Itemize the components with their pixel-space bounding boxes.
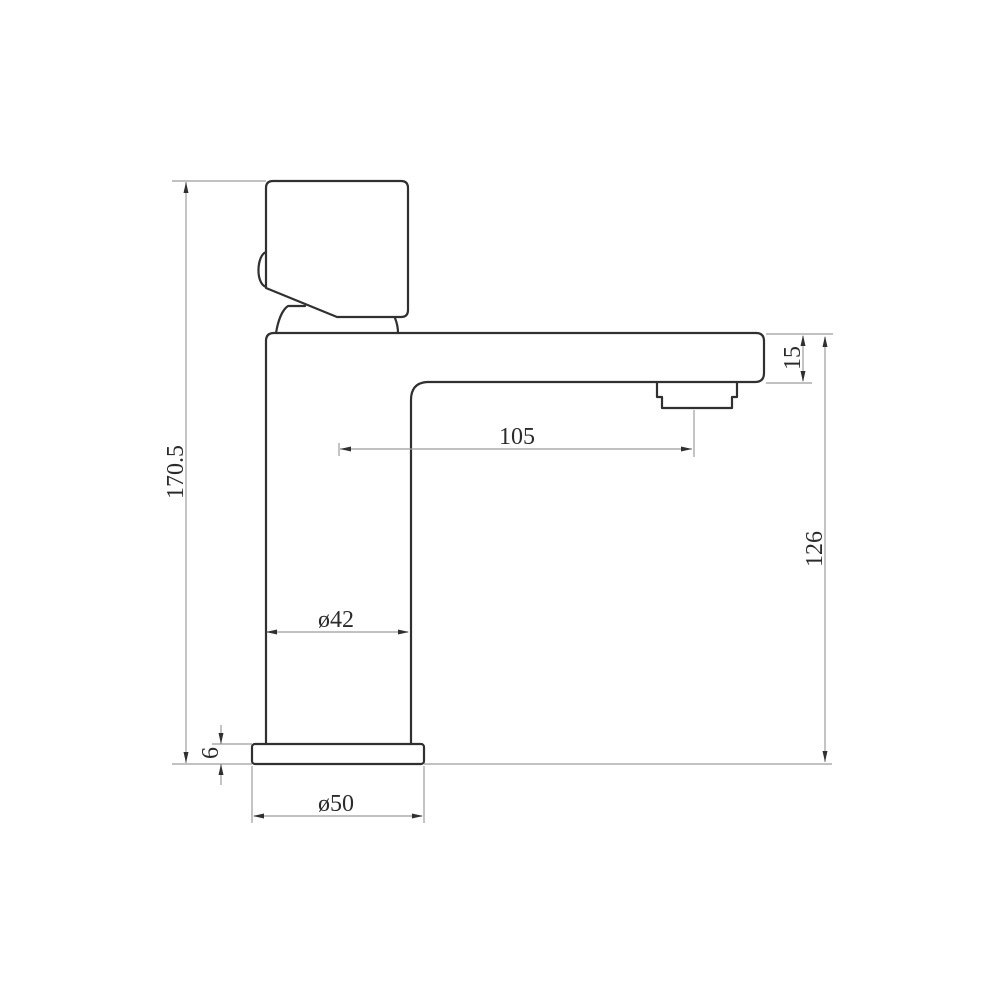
- arrow-spout-reach-right: [681, 447, 692, 452]
- arrow-spout-reach-left: [340, 447, 351, 452]
- dimension-arrows-group: [184, 182, 828, 819]
- dim-label-spout-reach: 105: [499, 424, 535, 450]
- dim-label-total-height: 170.5: [163, 445, 189, 499]
- arrow-spout-underside-bottom: [823, 751, 828, 762]
- arrow-body-dia-left: [266, 630, 277, 635]
- dim-label-spout-tip-height: 15: [780, 346, 806, 370]
- dim-label-base-height: 6: [198, 747, 224, 759]
- arrow-spout-tip-top: [801, 335, 806, 346]
- dim-label-body-diameter: ø42: [318, 607, 354, 633]
- faucet-body-spout-outline: [266, 333, 764, 744]
- faucet-technical-drawing: 170.5 6 ø42 ø50 105 15 126: [0, 0, 1000, 1000]
- arrow-total-height-top: [184, 182, 189, 193]
- faucet-outline-group: [252, 181, 764, 764]
- neck-left-outline: [276, 306, 305, 333]
- arrow-body-dia-right: [398, 630, 409, 635]
- base-plate-outline: [252, 744, 424, 764]
- dimension-labels-group: 170.5 6 ø42 ø50 105 15 126: [163, 346, 828, 817]
- handle-lever-cap-outline: [258, 252, 266, 287]
- drawing-canvas: 170.5 6 ø42 ø50 105 15 126: [0, 0, 1000, 1000]
- faucet-handle-outline: [266, 181, 408, 317]
- arrow-base-dia-right: [412, 814, 423, 819]
- arrow-total-height-bottom: [184, 752, 189, 763]
- dim-label-base-diameter: ø50: [318, 791, 354, 817]
- arrow-base-height-bottom: [219, 764, 224, 775]
- arrow-base-dia-left: [253, 814, 264, 819]
- neck-right-outline: [395, 318, 398, 333]
- arrow-spout-underside-top: [823, 336, 828, 347]
- aerator-outline: [657, 383, 737, 408]
- arrow-base-height-top: [219, 733, 224, 744]
- dimension-lines-group: [172, 181, 833, 823]
- arrow-spout-tip-bottom: [801, 371, 806, 382]
- dim-label-spout-underside-height: 126: [802, 531, 828, 567]
